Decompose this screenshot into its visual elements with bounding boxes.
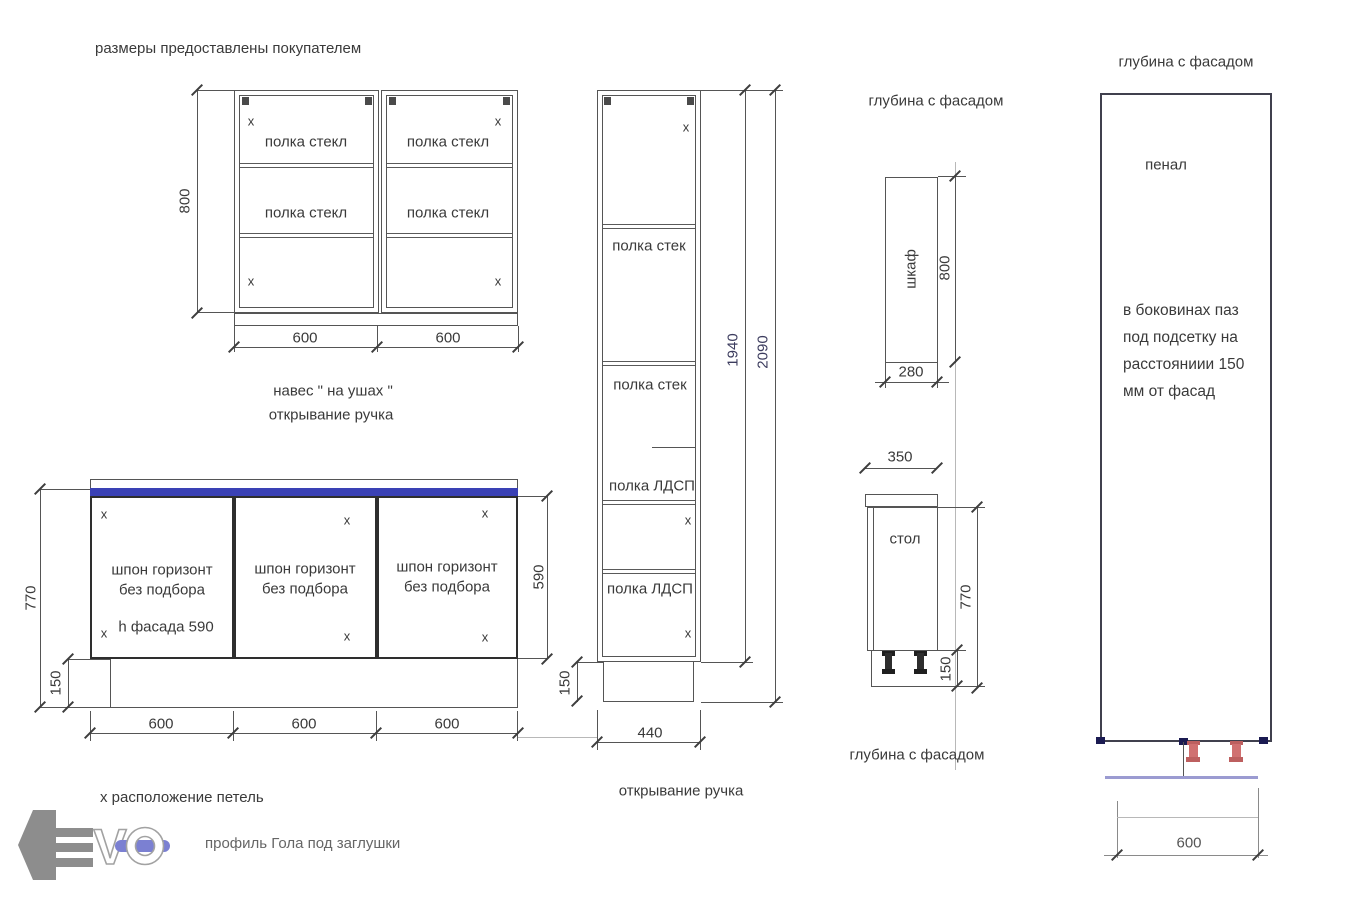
- hinge-x-mark: х: [344, 513, 351, 528]
- shelf-line: [387, 233, 512, 238]
- hinge-block-icon: [365, 97, 372, 105]
- construction-line: [1117, 817, 1258, 818]
- door-label: без подбора: [262, 581, 348, 598]
- door-facade-note: h фасада 590: [118, 619, 213, 636]
- note-gola-profile: профиль Гола под заглушки: [205, 835, 400, 852]
- wall-cabinet-caption: навес " на ушах ": [273, 383, 393, 400]
- evo-logo: V: [12, 800, 192, 892]
- hinge-x-mark: х: [101, 626, 108, 641]
- door-label: без подбора: [404, 579, 490, 596]
- shelf-label: полка стекл: [265, 134, 347, 151]
- dim-line: [1104, 855, 1268, 856]
- extension-line: [518, 496, 547, 497]
- corner-marker-icon: [1259, 737, 1268, 744]
- shelf-label: полка стек: [613, 377, 686, 394]
- shelf-line: [240, 163, 373, 168]
- shelf-line: [387, 163, 512, 168]
- dim-label-plinth: 150: [938, 656, 955, 681]
- note-customer-sizes: размеры предоставлены покупателем: [95, 40, 361, 57]
- depth-footer: глубина с фасадом: [850, 747, 985, 764]
- shelf-label: полка стекл: [265, 205, 347, 222]
- shelf-label: полка стекл: [407, 205, 489, 222]
- tall-cabinet-caption: открывание ручка: [619, 783, 744, 800]
- shelf-line: [240, 233, 373, 238]
- plinth-line: [871, 651, 872, 687]
- extension-line: [700, 710, 701, 750]
- dim-line: [745, 90, 746, 662]
- extension-line: [938, 650, 966, 651]
- leg-icon: [914, 669, 927, 674]
- door-label: шпон горизонт: [396, 559, 497, 576]
- dim-line: [597, 742, 701, 743]
- dim-label-height: 800: [937, 255, 954, 280]
- extension-line: [937, 362, 938, 388]
- shelf-line: [603, 224, 695, 229]
- plinth-line: [110, 659, 111, 708]
- dim-label-width: 600: [148, 716, 173, 733]
- extension-line: [597, 710, 598, 750]
- leg-icon: [1186, 757, 1200, 762]
- dim-label-plinth: 150: [557, 670, 574, 695]
- base-unit-countertop: [865, 494, 938, 507]
- penal-label: пенал: [1145, 157, 1187, 174]
- extension-line: [40, 707, 110, 708]
- penal-note: расстояниии 150: [1123, 356, 1244, 374]
- dim-line: [68, 659, 69, 708]
- corner-marker-icon: [1096, 737, 1105, 744]
- leg-icon: [1189, 744, 1198, 758]
- extension-line: [1117, 801, 1118, 858]
- hinge-x-mark: х: [685, 513, 692, 528]
- plinth-line: [517, 659, 518, 708]
- leg-icon: [1229, 757, 1243, 762]
- hinge-x-mark: х: [683, 120, 690, 135]
- hinge-x-mark: х: [248, 114, 255, 129]
- penal-note: под подсетку на: [1123, 329, 1238, 347]
- plinth-line: [693, 662, 694, 702]
- center-line: [1183, 742, 1184, 777]
- hinge-x-mark: х: [101, 507, 108, 522]
- logo-e-bar-icon: [56, 858, 93, 867]
- dim-line: [775, 90, 776, 702]
- base-unit-side-box: [867, 507, 938, 651]
- base-door-2: [234, 496, 377, 659]
- dim-line: [40, 489, 41, 708]
- shelf-label: полка стек: [612, 238, 685, 255]
- wall-cabinet-caption: открывание ручка: [269, 407, 394, 424]
- dim-label-width: 600: [1176, 835, 1201, 852]
- penal-note: в боковинах паз: [1123, 302, 1239, 320]
- hinge-x-mark: х: [482, 630, 489, 645]
- dim-line: [977, 507, 978, 688]
- floor-line: [1105, 776, 1258, 779]
- dim-label-width: 600: [435, 330, 460, 347]
- hinge-block-icon: [389, 97, 396, 105]
- dim-label-height: 770: [958, 584, 975, 609]
- wall-unit-label: шкаф: [903, 249, 920, 289]
- leg-icon: [1232, 744, 1241, 758]
- hinge-block-icon: [503, 97, 510, 105]
- dim-line: [90, 733, 518, 734]
- base-door-3: [377, 496, 518, 659]
- evo-logo-graphic: V: [12, 800, 192, 892]
- extension-line: [701, 702, 783, 703]
- extension-line: [233, 711, 234, 741]
- hinge-x-mark: х: [248, 274, 255, 289]
- logo-e-bar-icon: [56, 828, 93, 837]
- plinth-line: [871, 686, 958, 687]
- dim-label-width: 600: [291, 716, 316, 733]
- shelf-line: [603, 361, 695, 366]
- dim-line: [865, 468, 937, 469]
- hinge-block-icon: [242, 97, 249, 105]
- construction-line: [518, 737, 597, 738]
- dim-label-height: 1940: [725, 333, 742, 366]
- plinth-line: [110, 707, 518, 708]
- dim-line: [957, 650, 958, 687]
- logo-e-bar-icon: [56, 843, 93, 852]
- dim-label-height: 800: [177, 188, 194, 213]
- extension-line: [376, 711, 377, 741]
- shelf-line: [603, 569, 695, 574]
- leg-icon: [882, 669, 895, 674]
- extension-line: [885, 362, 886, 388]
- hinge-x-mark: х: [495, 274, 502, 289]
- shelf-line: [603, 500, 695, 505]
- plinth-line: [603, 662, 604, 702]
- penal-box: [1100, 93, 1272, 742]
- extension-line: [958, 686, 985, 687]
- extension-line: [40, 489, 90, 490]
- shelf-label: полка ЛДСП: [609, 478, 695, 495]
- hinge-block-icon: [687, 97, 694, 105]
- dim-label-total-height: 2090: [755, 335, 772, 368]
- wall-cabinet-left-inner-frame: [239, 95, 374, 308]
- dim-label-height: 770: [23, 585, 40, 610]
- extension-line: [197, 312, 234, 313]
- extension-line: [577, 662, 603, 663]
- dim-line: [955, 176, 956, 363]
- door-label: шпон горизонт: [111, 562, 212, 579]
- door-label: без подбора: [119, 582, 205, 599]
- door-front-line: [873, 508, 874, 650]
- dim-label-facade: 590: [531, 564, 548, 589]
- extension-line: [68, 659, 110, 660]
- dim-label-depth: 280: [898, 364, 923, 381]
- dim-label-plinth: 150: [48, 670, 65, 695]
- dim-line: [577, 662, 578, 702]
- extension-line: [90, 711, 91, 741]
- shelf-label: полка стекл: [407, 134, 489, 151]
- extension-line: [518, 658, 547, 659]
- hinge-x-mark: х: [495, 114, 502, 129]
- dim-label-depth: 350: [887, 449, 912, 466]
- dim-line: [197, 90, 198, 313]
- depth-header: глубина с фасадом: [869, 93, 1004, 110]
- drawing-canvas: размеры предоставлены покупателем полка …: [0, 0, 1371, 900]
- penal-note: мм от фасад: [1123, 383, 1215, 401]
- hinge-x-mark: х: [685, 626, 692, 641]
- hinge-x-mark: х: [344, 629, 351, 644]
- hinge-x-mark: х: [482, 506, 489, 521]
- wall-cabinet-bottom-rail: [234, 313, 518, 326]
- door-label: шпон горизонт: [254, 561, 355, 578]
- dim-label-width: 600: [292, 330, 317, 347]
- dim-label-width: 440: [637, 725, 662, 742]
- shelf-edge-line: [652, 447, 696, 448]
- extension-line: [197, 90, 234, 91]
- extension-line: [1258, 788, 1259, 858]
- base-unit-label: стол: [890, 531, 921, 548]
- dim-label-width: 600: [434, 716, 459, 733]
- countertop-profile-strip: [90, 488, 518, 496]
- hinge-block-icon: [604, 97, 611, 105]
- shelf-label: полка ЛДСП: [607, 581, 693, 598]
- plinth-line: [603, 701, 694, 702]
- depth-header: глубина с фасадом: [1119, 54, 1254, 71]
